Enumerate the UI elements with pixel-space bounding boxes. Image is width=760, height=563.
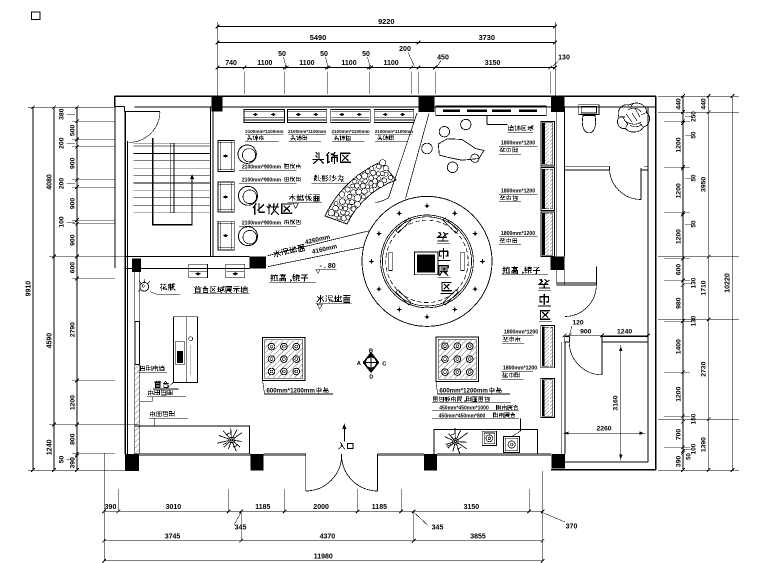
svg-text:1400: 1400 [676, 339, 683, 354]
svg-text:130: 130 [558, 55, 570, 62]
svg-text:1240: 1240 [617, 329, 632, 336]
svg-text:100: 100 [691, 443, 698, 454]
svg-text:1200: 1200 [676, 183, 683, 198]
svg-text:700: 700 [676, 429, 683, 441]
svg-text:2100mm*1100mm: 2100mm*1100mm [245, 129, 283, 134]
svg-text:150: 150 [691, 413, 698, 424]
svg-text:1100: 1100 [384, 60, 399, 67]
svg-text:B: B [369, 348, 373, 354]
svg-text:1800mm*1200: 1800mm*1200 [501, 141, 535, 147]
svg-text:390: 390 [105, 504, 117, 511]
svg-text:500: 500 [70, 125, 77, 137]
svg-text:1800mm*1200: 1800mm*1200 [503, 365, 537, 371]
svg-text:800: 800 [70, 433, 77, 445]
svg-text:2100mm*900mm: 2100mm*900mm [242, 178, 282, 184]
svg-text:3160: 3160 [613, 395, 620, 410]
svg-text:3150: 3150 [464, 504, 480, 511]
svg-text:5490: 5490 [310, 33, 326, 42]
svg-text:2260: 2260 [596, 426, 611, 433]
svg-text:50: 50 [362, 51, 370, 58]
svg-text:2100mm*1100mm: 2100mm*1100mm [288, 129, 326, 134]
svg-text:50: 50 [320, 51, 328, 58]
svg-text:3010: 3010 [166, 504, 182, 511]
svg-text:900: 900 [580, 329, 592, 336]
svg-text:2790: 2790 [70, 322, 77, 337]
svg-text:900: 900 [70, 198, 77, 210]
svg-text:200: 200 [399, 46, 411, 53]
svg-text:4370: 4370 [320, 533, 336, 540]
svg-text:1390: 1390 [701, 437, 708, 452]
svg-text:2100mm*900mm: 2100mm*900mm [242, 221, 282, 227]
svg-text:130: 130 [691, 315, 698, 326]
svg-text:380: 380 [59, 108, 66, 120]
svg-text:50: 50 [687, 453, 693, 460]
svg-text:1200: 1200 [676, 229, 683, 244]
svg-text:50: 50 [59, 456, 66, 464]
svg-text:130: 130 [691, 277, 698, 288]
svg-text:1185: 1185 [255, 504, 270, 511]
svg-text:250: 250 [691, 111, 698, 122]
svg-text:200: 200 [59, 137, 66, 149]
svg-text:9220: 9220 [378, 17, 394, 26]
svg-text:600mm*1200mm: 600mm*1200mm [439, 387, 488, 394]
svg-text:1800mm*1200: 1800mm*1200 [501, 231, 535, 237]
svg-text:600: 600 [676, 264, 683, 276]
svg-text:3855: 3855 [470, 533, 486, 540]
svg-text:440: 440 [701, 98, 708, 110]
svg-text:2000: 2000 [313, 504, 329, 511]
svg-text:2100mm*1100mm: 2100mm*1100mm [331, 129, 369, 134]
svg-text:900: 900 [70, 234, 77, 246]
svg-text:2100mm*900mm: 2100mm*900mm [242, 165, 282, 171]
svg-text:1100: 1100 [341, 60, 356, 67]
svg-text:440: 440 [676, 98, 683, 110]
svg-text:D: D [369, 375, 373, 381]
svg-text:1710: 1710 [701, 280, 708, 295]
svg-text:50: 50 [278, 51, 286, 58]
svg-text:1240: 1240 [47, 439, 54, 455]
svg-text:900: 900 [70, 157, 77, 169]
svg-text:3730: 3730 [479, 33, 495, 42]
svg-text:4080: 4080 [47, 174, 54, 190]
svg-text:1800mm*1200: 1800mm*1200 [504, 329, 538, 335]
svg-text:. 80: . 80 [324, 263, 336, 270]
svg-text:1200: 1200 [676, 137, 683, 152]
svg-text:1100: 1100 [299, 60, 314, 67]
svg-text:3150: 3150 [485, 60, 501, 67]
svg-text:100: 100 [59, 216, 66, 228]
svg-text:345: 345 [432, 525, 444, 532]
svg-text:1200: 1200 [676, 386, 683, 401]
svg-text:390: 390 [676, 456, 683, 468]
svg-text:1185: 1185 [372, 504, 387, 511]
svg-text:50: 50 [691, 174, 698, 182]
svg-text:600mm*1200mm: 600mm*1200mm [266, 387, 315, 394]
svg-text:9910: 9910 [26, 281, 33, 297]
svg-text:200: 200 [59, 178, 66, 190]
svg-text:980: 980 [676, 297, 683, 309]
svg-text:3950: 3950 [701, 177, 708, 192]
svg-text:345: 345 [235, 525, 247, 532]
svg-text:740: 740 [225, 60, 237, 67]
svg-text:11980: 11980 [314, 554, 333, 561]
svg-text:50: 50 [691, 131, 698, 139]
svg-text:1200: 1200 [70, 395, 77, 410]
svg-text:3745: 3745 [165, 533, 181, 540]
svg-text:120: 120 [572, 320, 584, 327]
svg-text:2730: 2730 [701, 361, 708, 376]
svg-text:600: 600 [70, 262, 77, 274]
svg-text:50: 50 [691, 220, 698, 228]
svg-text:2100mm*1100mm: 2100mm*1100mm [375, 129, 413, 134]
svg-text:370: 370 [566, 524, 578, 531]
svg-text:390: 390 [70, 457, 77, 469]
svg-text:450: 450 [437, 55, 449, 62]
svg-text:1100: 1100 [257, 60, 272, 67]
svg-text:4590: 4590 [47, 333, 54, 349]
svg-text:1800mm*1200: 1800mm*1200 [501, 188, 535, 194]
svg-text:10220: 10220 [725, 273, 732, 293]
